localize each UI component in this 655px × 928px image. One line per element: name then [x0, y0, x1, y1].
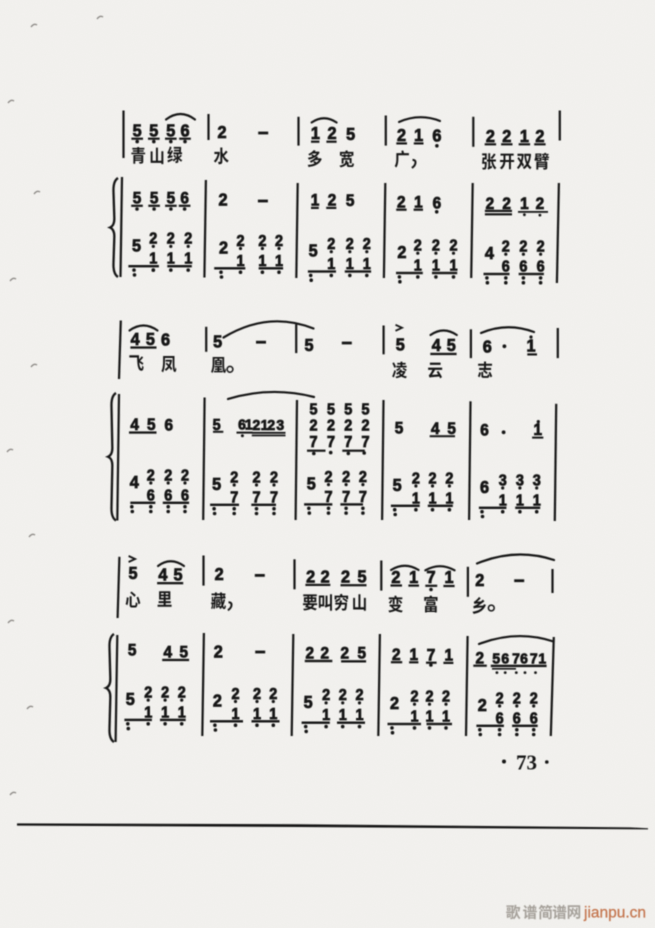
- svg-text:1: 1: [245, 417, 253, 434]
- svg-text:2: 2: [253, 418, 261, 435]
- svg-text:2: 2: [327, 124, 336, 144]
- svg-text:2: 2: [213, 691, 222, 711]
- svg-text:2: 2: [217, 122, 226, 142]
- svg-text:5: 5: [307, 474, 316, 494]
- svg-text:6: 6: [432, 126, 441, 146]
- svg-text:5: 5: [396, 335, 405, 355]
- svg-text:2: 2: [327, 417, 335, 435]
- svg-text:7: 7: [309, 433, 317, 451]
- svg-text:6: 6: [480, 477, 489, 497]
- svg-text:2: 2: [214, 642, 223, 662]
- svg-text:1: 1: [409, 567, 418, 587]
- svg-text:2: 2: [390, 694, 399, 714]
- svg-text:2: 2: [475, 570, 484, 590]
- svg-text:4: 4: [131, 330, 141, 350]
- svg-text:5: 5: [128, 564, 137, 584]
- svg-text:5: 5: [212, 474, 221, 494]
- svg-text:4: 4: [158, 565, 168, 585]
- svg-text:5: 5: [346, 192, 355, 210]
- svg-text:6: 6: [433, 195, 442, 213]
- svg-text:5: 5: [357, 567, 366, 587]
- svg-text:5: 5: [128, 642, 137, 660]
- svg-text:2: 2: [309, 417, 317, 435]
- svg-text:73: 73: [516, 751, 537, 775]
- svg-text:5: 5: [133, 121, 142, 141]
- svg-text:4: 4: [485, 244, 495, 264]
- svg-text:6: 6: [164, 417, 173, 435]
- svg-text:5: 5: [166, 121, 175, 141]
- svg-text:2: 2: [341, 567, 350, 587]
- svg-text:2: 2: [341, 645, 350, 663]
- svg-text:2: 2: [219, 238, 228, 258]
- svg-text:5: 5: [327, 401, 335, 419]
- svg-text:2: 2: [215, 565, 224, 585]
- svg-text:7: 7: [327, 433, 335, 451]
- svg-text:1: 1: [526, 336, 535, 356]
- svg-text:5: 5: [213, 332, 222, 352]
- svg-text:2: 2: [486, 126, 495, 146]
- svg-text:2: 2: [218, 190, 227, 210]
- svg-text:2: 2: [397, 243, 406, 263]
- svg-text:5: 5: [132, 236, 141, 256]
- svg-text:2: 2: [321, 567, 330, 587]
- svg-text:5: 5: [344, 401, 352, 419]
- svg-text:5: 5: [146, 330, 155, 350]
- svg-text:2: 2: [478, 695, 487, 715]
- svg-text:1: 1: [520, 126, 529, 146]
- svg-text:7: 7: [344, 433, 352, 451]
- svg-text:2: 2: [502, 126, 511, 146]
- svg-text:5: 5: [393, 475, 402, 495]
- svg-text:5: 5: [447, 336, 456, 356]
- svg-text:2: 2: [344, 417, 352, 435]
- svg-text:2: 2: [361, 417, 369, 435]
- svg-text:2: 2: [397, 125, 406, 145]
- svg-text:4: 4: [432, 336, 442, 356]
- svg-text:1: 1: [444, 567, 453, 587]
- svg-text:5: 5: [304, 692, 313, 712]
- svg-text:1: 1: [311, 124, 320, 144]
- svg-text:7: 7: [361, 433, 369, 451]
- svg-text:2: 2: [536, 195, 545, 213]
- svg-text:2: 2: [535, 126, 544, 146]
- svg-text:1: 1: [533, 421, 542, 439]
- svg-text:jianpu.cn: jianpu.cn: [583, 905, 646, 922]
- svg-text:5: 5: [126, 690, 135, 710]
- svg-text:6: 6: [161, 330, 170, 350]
- svg-text:5: 5: [173, 565, 182, 585]
- svg-text:1: 1: [520, 195, 529, 213]
- svg-text:2: 2: [391, 567, 400, 587]
- svg-text:6: 6: [480, 422, 489, 440]
- svg-text:4: 4: [130, 472, 140, 492]
- svg-text:1: 1: [414, 125, 423, 145]
- svg-text:2: 2: [306, 567, 315, 587]
- svg-text:2: 2: [267, 418, 275, 435]
- svg-text:5: 5: [304, 335, 313, 355]
- svg-text:6: 6: [483, 337, 492, 357]
- svg-text:3: 3: [276, 418, 284, 435]
- svg-text:5: 5: [309, 401, 317, 419]
- svg-text:5: 5: [361, 401, 369, 419]
- svg-text:5: 5: [149, 121, 158, 141]
- svg-text:5: 5: [309, 241, 318, 261]
- svg-text:6: 6: [180, 121, 189, 141]
- svg-text:7: 7: [426, 567, 435, 587]
- svg-text:5: 5: [395, 420, 404, 438]
- svg-text:5: 5: [346, 124, 355, 144]
